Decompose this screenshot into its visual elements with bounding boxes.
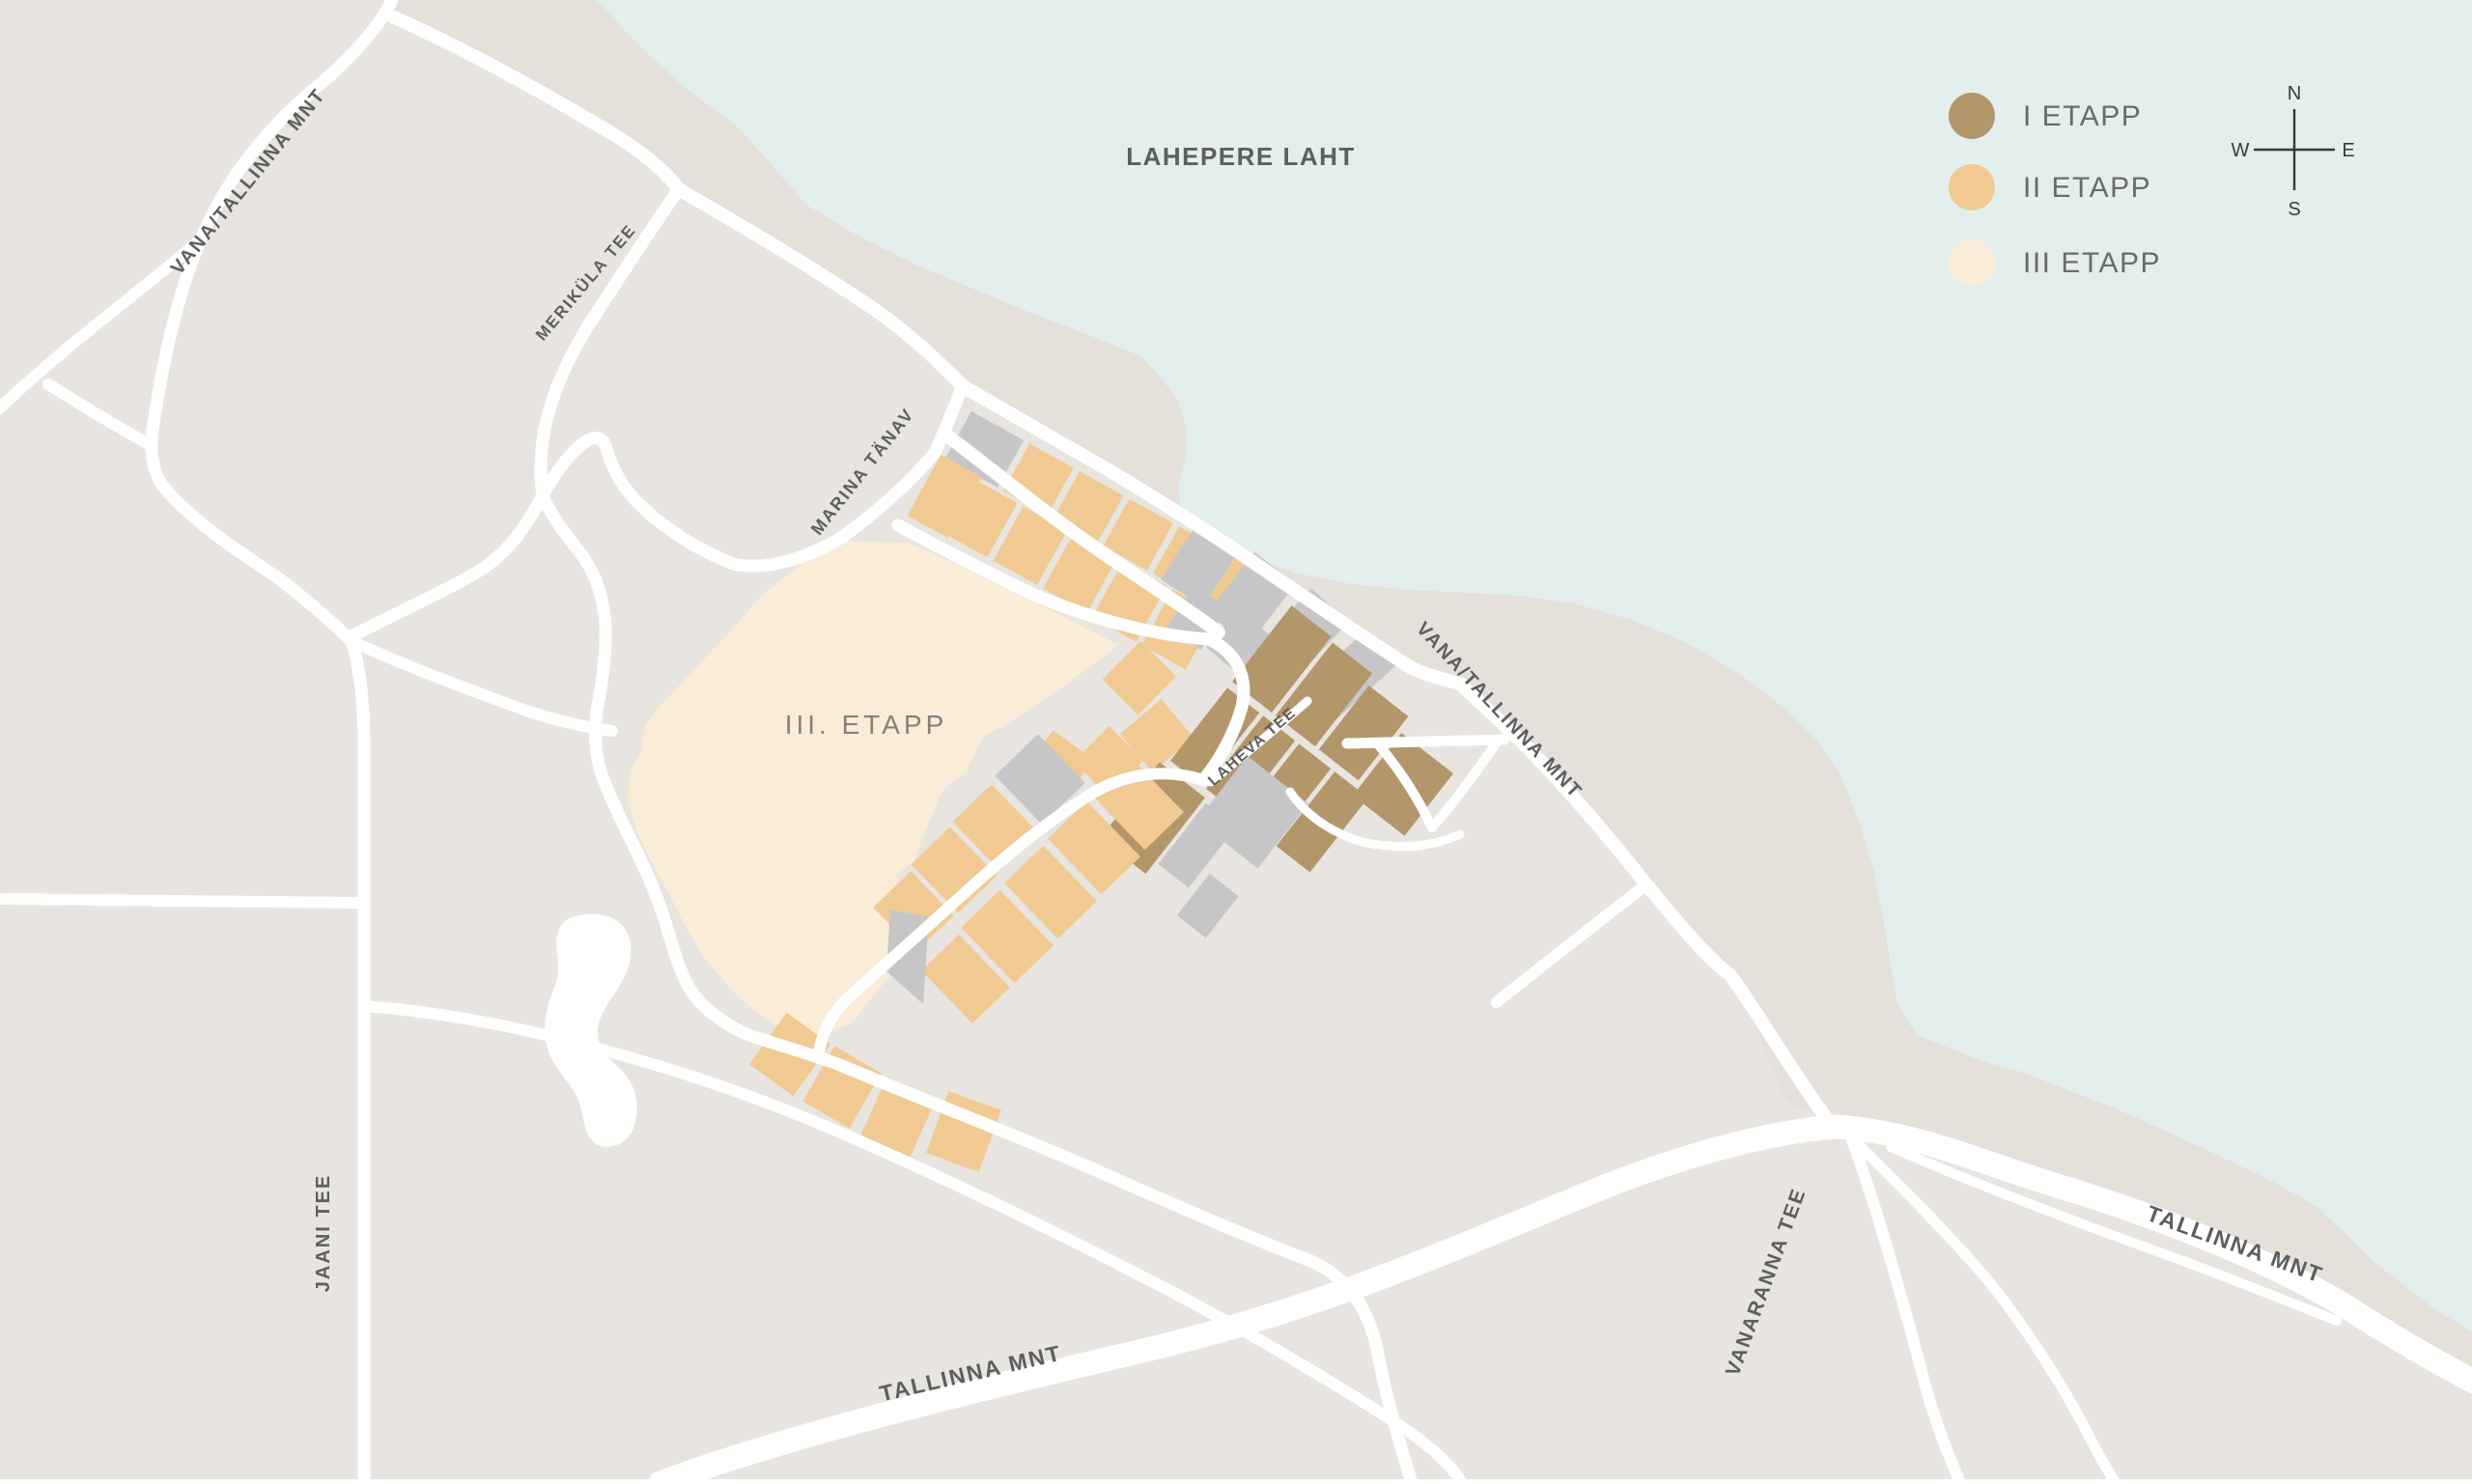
svg-text:III ETAPP: III ETAPP	[2023, 247, 2161, 279]
svg-text:S: S	[2288, 199, 2300, 220]
svg-text:III. ETAPP: III. ETAPP	[785, 710, 948, 740]
svg-text:N: N	[2288, 83, 2301, 104]
svg-text:JAANI TEE: JAANI TEE	[313, 1174, 334, 1292]
svg-text:E: E	[2342, 140, 2354, 161]
svg-text:I ETAPP: I ETAPP	[2023, 100, 2142, 132]
svg-text:W: W	[2232, 140, 2250, 161]
svg-text:LAHEPERE LAHT: LAHEPERE LAHT	[1126, 142, 1356, 171]
svg-text:II ETAPP: II ETAPP	[2023, 172, 2151, 204]
